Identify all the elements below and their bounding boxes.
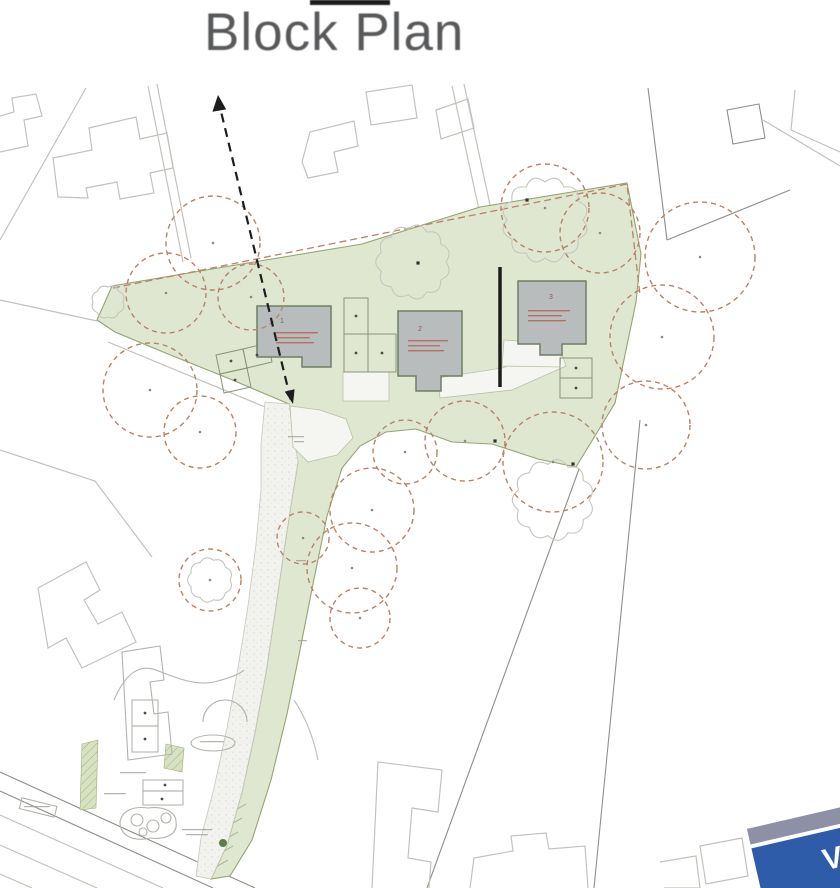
shrub-icon	[219, 839, 227, 847]
tree-centre-dot	[209, 579, 212, 582]
bay-dot	[381, 352, 384, 355]
bay-dot	[161, 798, 164, 801]
illegible-gray-label	[298, 640, 307, 641]
tree-centre-dot	[404, 451, 407, 454]
tree-marker-dot	[493, 439, 496, 442]
bay-dot	[144, 712, 147, 715]
tree-centre-dot	[199, 431, 202, 434]
illegible-red-label	[276, 337, 310, 338]
bay-dot	[355, 315, 358, 318]
tree-centre-dot	[359, 617, 362, 620]
bay-dot	[575, 367, 578, 370]
illegible-gray-label	[296, 560, 306, 561]
tree-centre-dot	[661, 336, 664, 339]
tree-marker-dot	[525, 198, 528, 201]
bay-dot	[256, 354, 259, 357]
illegible-red-label	[276, 332, 318, 333]
central-court	[343, 372, 389, 401]
tree-centre-dot	[645, 424, 648, 427]
bay-dot	[234, 379, 237, 382]
plot-2-number: 2	[418, 326, 422, 333]
plot-1-number: 1	[280, 318, 284, 325]
tree-marker-dot	[416, 261, 419, 264]
block-plan-drawing: 1 2 3 V	[0, 0, 840, 888]
tree-centre-dot	[165, 292, 168, 295]
tree-centre-dot	[302, 537, 305, 540]
tree-centre-dot	[351, 567, 354, 570]
illegible-red-label	[408, 350, 444, 351]
illegible-red-label	[528, 310, 570, 311]
bay-dot	[575, 387, 578, 390]
tree-centre-dot	[544, 207, 547, 210]
existing-tree-icon	[512, 460, 592, 541]
tree-centre-dot	[371, 509, 374, 512]
tree-centre-dot	[699, 256, 702, 259]
tree-centre-dot	[212, 242, 215, 245]
tree-centre-dot	[250, 296, 253, 299]
bay-dot	[355, 352, 358, 355]
illegible-gray-label	[186, 834, 208, 835]
illegible-red-label	[408, 345, 440, 346]
tree-marker-dot	[571, 462, 574, 465]
agency-logo: V	[747, 797, 840, 888]
illegible-gray-label	[182, 829, 212, 830]
illegible-gray-label	[24, 806, 50, 807]
bay-dot	[230, 360, 233, 363]
illegible-red-label	[408, 340, 448, 341]
neighbour-boundaries	[0, 84, 840, 888]
tree-centre-dot	[149, 389, 152, 392]
tree-centre-dot	[464, 440, 467, 443]
bay-dot	[164, 784, 167, 787]
plot-3-building	[518, 281, 586, 355]
illegible-gray-label	[200, 741, 224, 742]
illegible-red-label	[528, 315, 562, 316]
illegible-gray-label	[294, 441, 304, 442]
illegible-gray-label	[288, 436, 304, 437]
plot-3-number: 3	[549, 294, 553, 301]
illegible-gray-label	[120, 772, 146, 773]
illegible-gray-label	[104, 793, 126, 794]
illegible-red-label	[276, 342, 314, 343]
tree-centre-dot	[552, 461, 555, 464]
bay-dot	[144, 738, 147, 741]
illegible-red-label	[528, 320, 566, 321]
tree-centre-dot	[599, 232, 602, 235]
